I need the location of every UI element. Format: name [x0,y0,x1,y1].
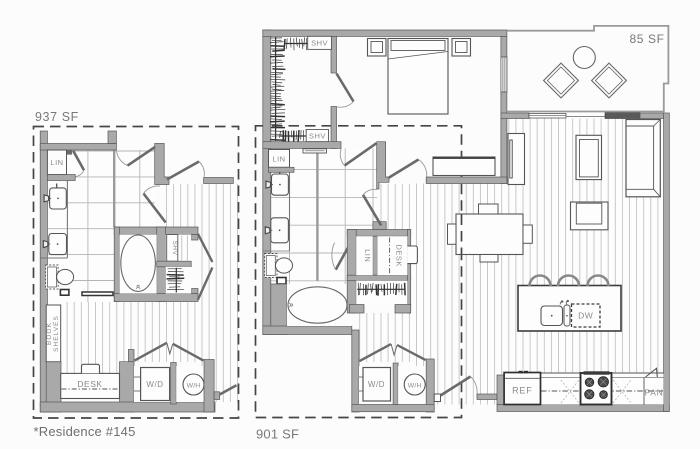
svg-text:*Residence #145: *Residence #145 [34,424,136,439]
svg-text:901 SF: 901 SF [256,427,299,442]
svg-text:W/H: W/H [408,383,422,390]
svg-text:SHELVES: SHELVES [53,315,60,352]
svg-text:SHV: SHV [311,39,328,48]
svg-text:DESK: DESK [395,244,404,266]
svg-text:PAN: PAN [645,388,664,398]
svg-text:LIN: LIN [50,158,63,167]
svg-text:DESK: DESK [77,379,102,389]
svg-text:SHV: SHV [309,132,326,141]
svg-text:SHV: SHV [171,241,178,256]
svg-text:W/D: W/D [368,380,385,389]
svg-text:W/D: W/D [146,380,163,389]
svg-text:85 SF: 85 SF [630,32,665,46]
svg-text:DW: DW [578,311,593,321]
svg-text:REF: REF [512,386,532,396]
svg-text:BOOK: BOOK [46,322,53,345]
svg-text:LIN: LIN [363,249,372,262]
svg-text:937 SF: 937 SF [35,110,79,124]
svg-text:LIN: LIN [272,155,285,164]
svg-text:W/H: W/H [187,383,201,390]
